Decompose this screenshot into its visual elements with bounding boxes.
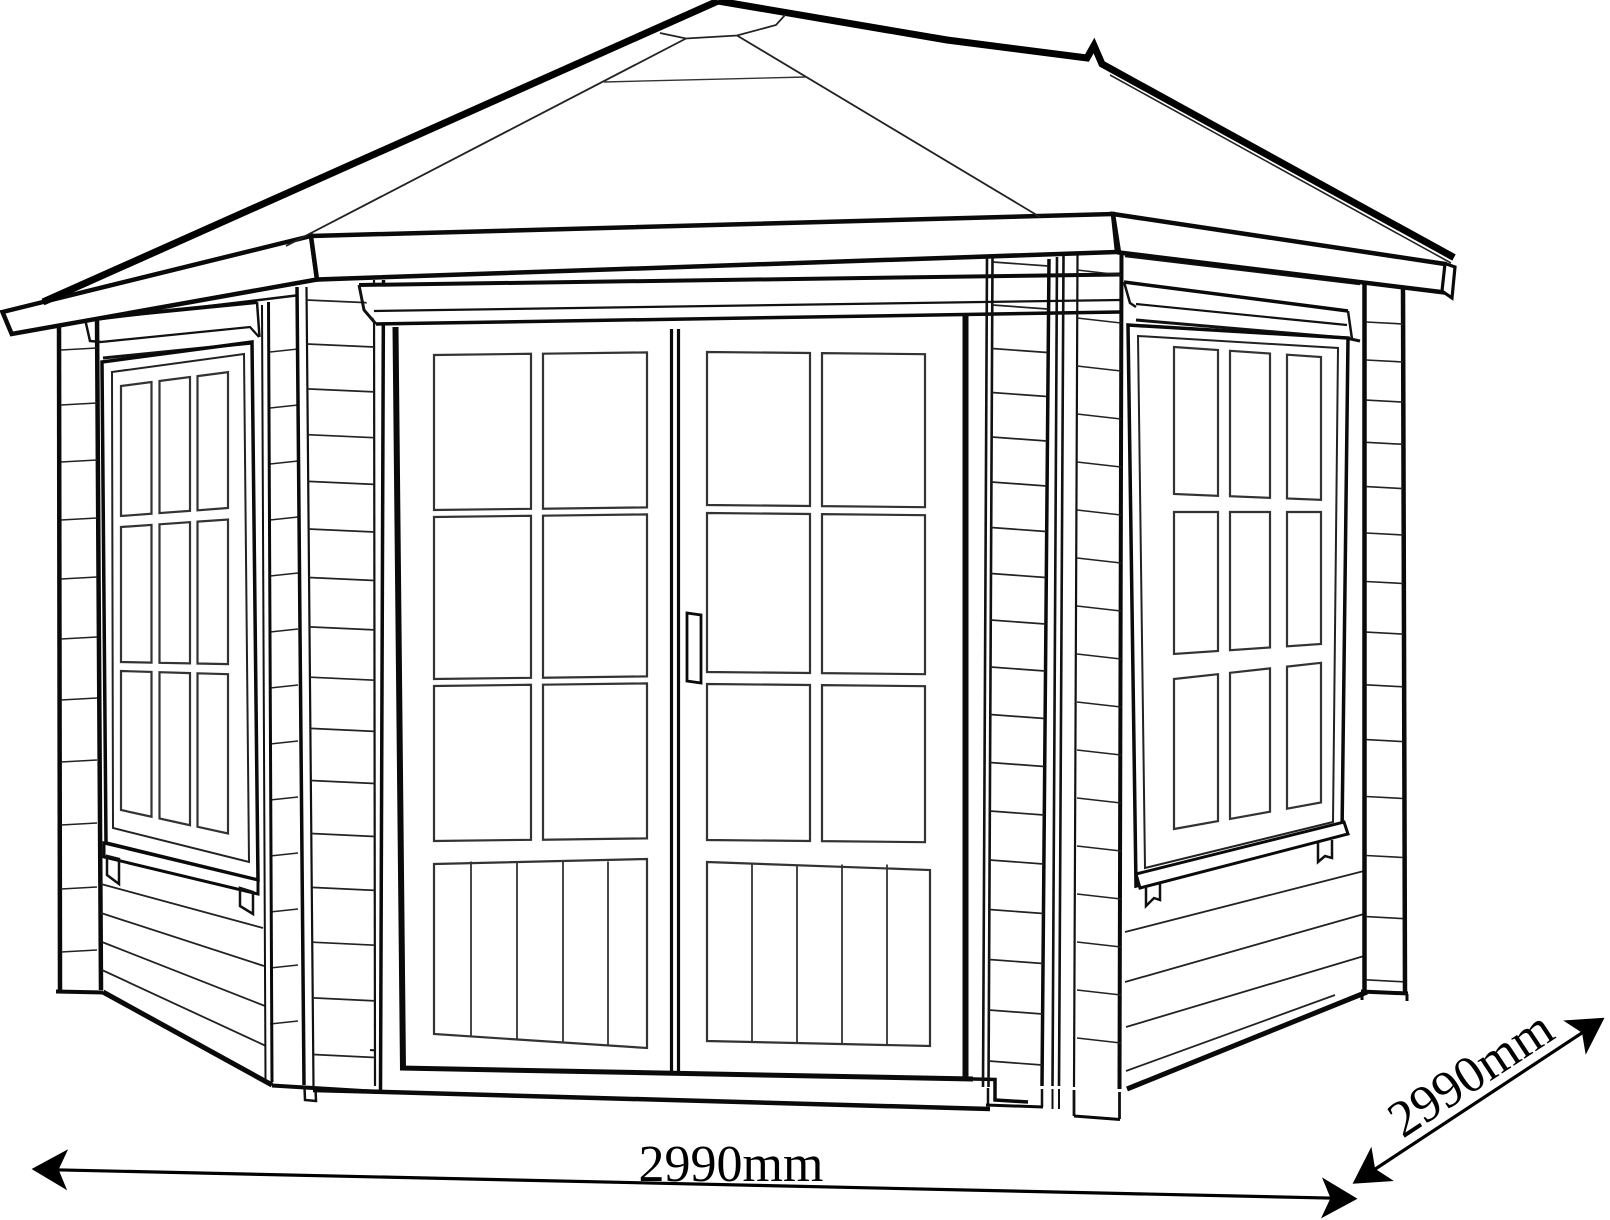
svg-text:2990mm: 2990mm	[639, 1136, 824, 1193]
